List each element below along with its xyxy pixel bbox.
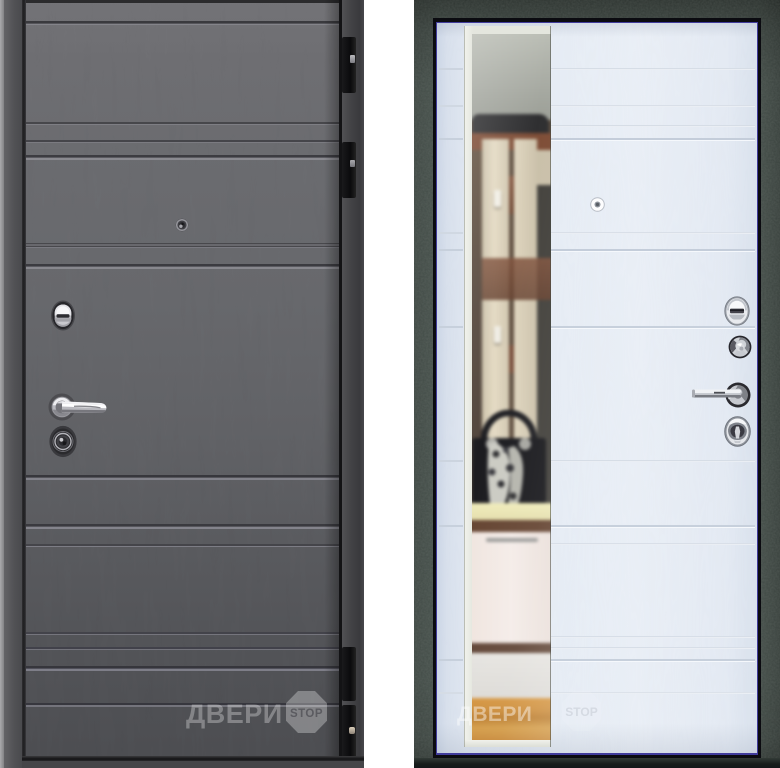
svg-text:STOP: STOP (290, 708, 323, 720)
svg-text:STOP: STOP (565, 705, 597, 719)
